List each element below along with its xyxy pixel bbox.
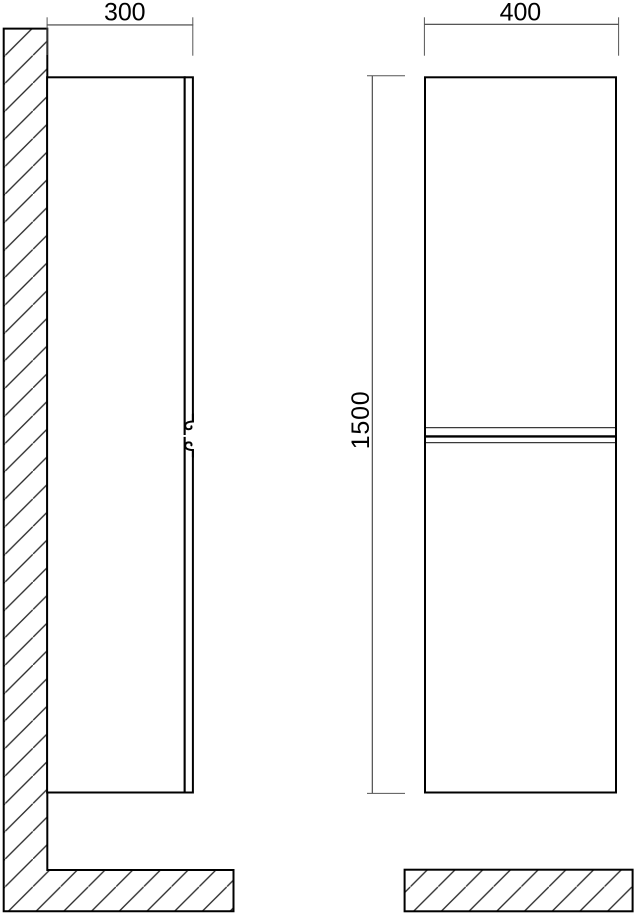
svg-text:1500: 1500 bbox=[347, 391, 375, 449]
svg-text:300: 300 bbox=[104, 0, 146, 26]
svg-text:400: 400 bbox=[500, 0, 542, 26]
